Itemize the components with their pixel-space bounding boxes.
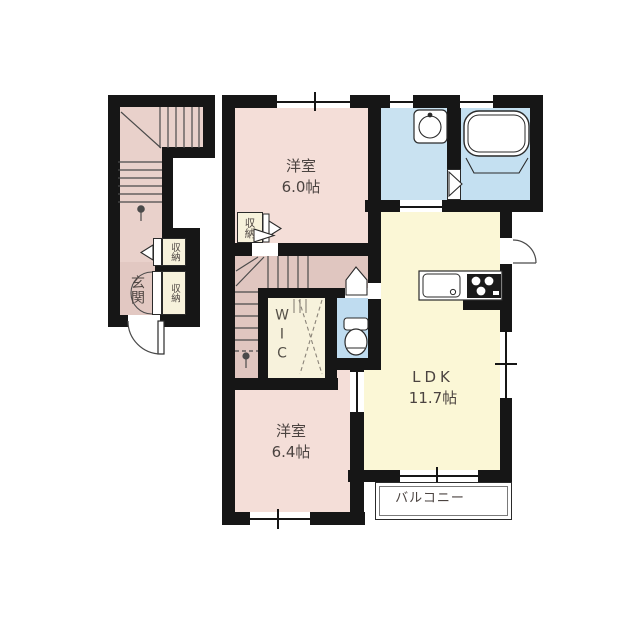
ldk-label: LDK 11.7帖: [409, 367, 457, 409]
closet-door-triangle: [141, 245, 153, 260]
external-staircase: [118, 107, 199, 221]
bedroom2-size: 6.4帖: [272, 442, 311, 463]
ldk-name: LDK: [412, 367, 454, 388]
bedroom1-name: 洋室: [286, 156, 316, 177]
fixtures-layer: [0, 0, 640, 640]
entrance-label: 玄関: [127, 275, 147, 305]
ldk-size: 11.7帖: [409, 388, 457, 409]
bathroom-door-triangle: [449, 172, 462, 196]
bathtub-icon: [464, 111, 529, 173]
bedroom1-label: 洋室 6.0帖: [282, 156, 321, 198]
entrance-door-swing: [128, 321, 164, 354]
bedroom2-label: 洋室 6.4帖: [272, 421, 311, 463]
internal-staircase: [235, 256, 308, 368]
bedroom1-size: 6.0帖: [282, 177, 321, 198]
wic-label: WIC: [274, 308, 290, 365]
kitchen-counter: [419, 271, 502, 300]
toilet-icon: [344, 318, 368, 355]
vanity-sink-icon: [414, 110, 447, 143]
toilet-door-leaf: [346, 267, 367, 295]
balcony-label: バルコニー: [395, 490, 465, 508]
wic-folding-door-symbol: [294, 299, 322, 374]
floor-plan: 洋室 6.0帖 洋室 6.4帖 LDK 11.7帖 WIC 玄関 収納 収納 収…: [0, 0, 640, 640]
ldk-side-door-swing: [513, 240, 536, 263]
gas-stove-icon: [467, 274, 501, 298]
closet-entrance-label: 収納: [167, 284, 181, 303]
closet-bedroom1-label: 収納: [243, 218, 258, 239]
bedroom2-name: 洋室: [276, 421, 306, 442]
closet-stairhall-label: 収納: [167, 243, 181, 262]
kitchen-sink-icon: [423, 274, 460, 297]
